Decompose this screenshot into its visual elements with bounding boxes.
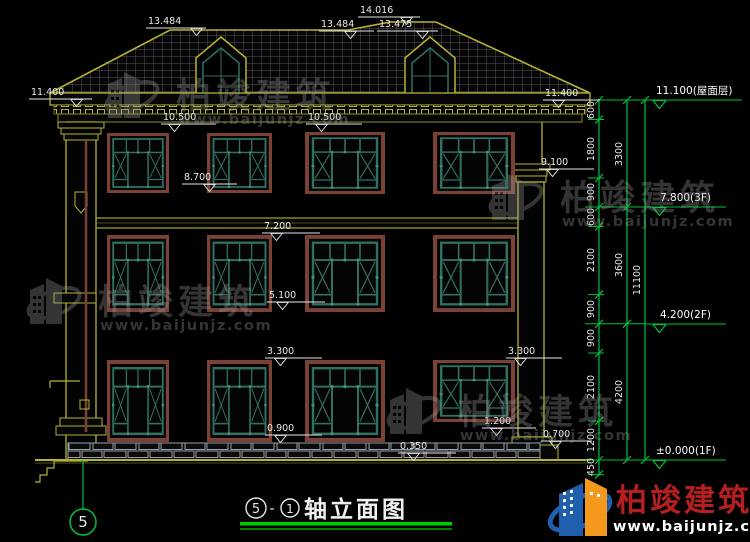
elev-label: 7.200 [264, 221, 291, 232]
title-underline-thick [240, 522, 452, 526]
elev-label: 3.300 [267, 346, 294, 357]
base [35, 443, 590, 482]
window [307, 362, 383, 440]
elev-label: 14.016 [360, 5, 393, 16]
dim-label: 3300 [614, 142, 625, 166]
window [307, 237, 383, 310]
dim-label: 900 [586, 300, 597, 318]
title-axis-to: 1 [286, 502, 294, 516]
brand-url-text: www.baijunjz.com [613, 519, 750, 535]
level-label: 4.200(2F) [660, 309, 711, 321]
dim-label: 1800 [586, 137, 597, 161]
title-separator: - [269, 501, 274, 517]
level-marks-right: 11.100(屋面层) 7.800(3F) 4.200(2F) ±0.000(1… [646, 85, 742, 469]
brand-name-text: 柏竣建筑 [616, 483, 750, 519]
elevation-drawing: 柏竣建筑 www.baijunjz.com [0, 0, 750, 542]
level-label: 11.100(屋面层) [656, 85, 732, 97]
elev-label: 0.900 [267, 423, 294, 434]
brand-logo-icon [545, 478, 615, 538]
window [109, 362, 168, 440]
elev-label: 13.475 [379, 19, 412, 30]
steps [35, 461, 88, 482]
dim-label: 3600 [614, 253, 625, 277]
window [209, 135, 271, 192]
brand-logo-block: 柏竣建筑 www.baijunjz.com [545, 478, 750, 538]
title-axis-from: 5 [252, 502, 260, 517]
dim-label: 450 [586, 458, 597, 476]
elev-label: 9.100 [541, 157, 568, 168]
title-block: 5 - 1 轴立面图 [240, 496, 452, 529]
elev-label: 13.484 [321, 19, 354, 30]
axis-bubble-label: 5 [78, 513, 88, 531]
dim-label: 11100 [632, 265, 643, 295]
elev-label: 5.100 [269, 290, 296, 301]
elev-label: 3.300 [508, 346, 535, 357]
elev-label: 11.400 [31, 87, 64, 98]
dim-label: 600 [586, 101, 597, 119]
window [209, 362, 271, 440]
dim-label: 2100 [586, 248, 597, 272]
elev-label: 11.400 [545, 88, 578, 99]
axis-bubble-5: 5 [70, 460, 96, 535]
elev-label: 13.484 [148, 16, 181, 27]
window [109, 135, 168, 192]
window [307, 134, 383, 193]
stone-base [68, 443, 540, 460]
window [435, 237, 513, 310]
level-label: ±0.000(1F) [656, 445, 716, 457]
cad-elevation-screenshot: 柏竣建筑 www.baijunjz.com [0, 0, 750, 542]
elev-label: 8.700 [184, 172, 211, 183]
dim-label: 900 [586, 329, 597, 347]
elev-label: 0.350 [400, 441, 427, 452]
drawing-title: 轴立面图 [304, 496, 408, 523]
